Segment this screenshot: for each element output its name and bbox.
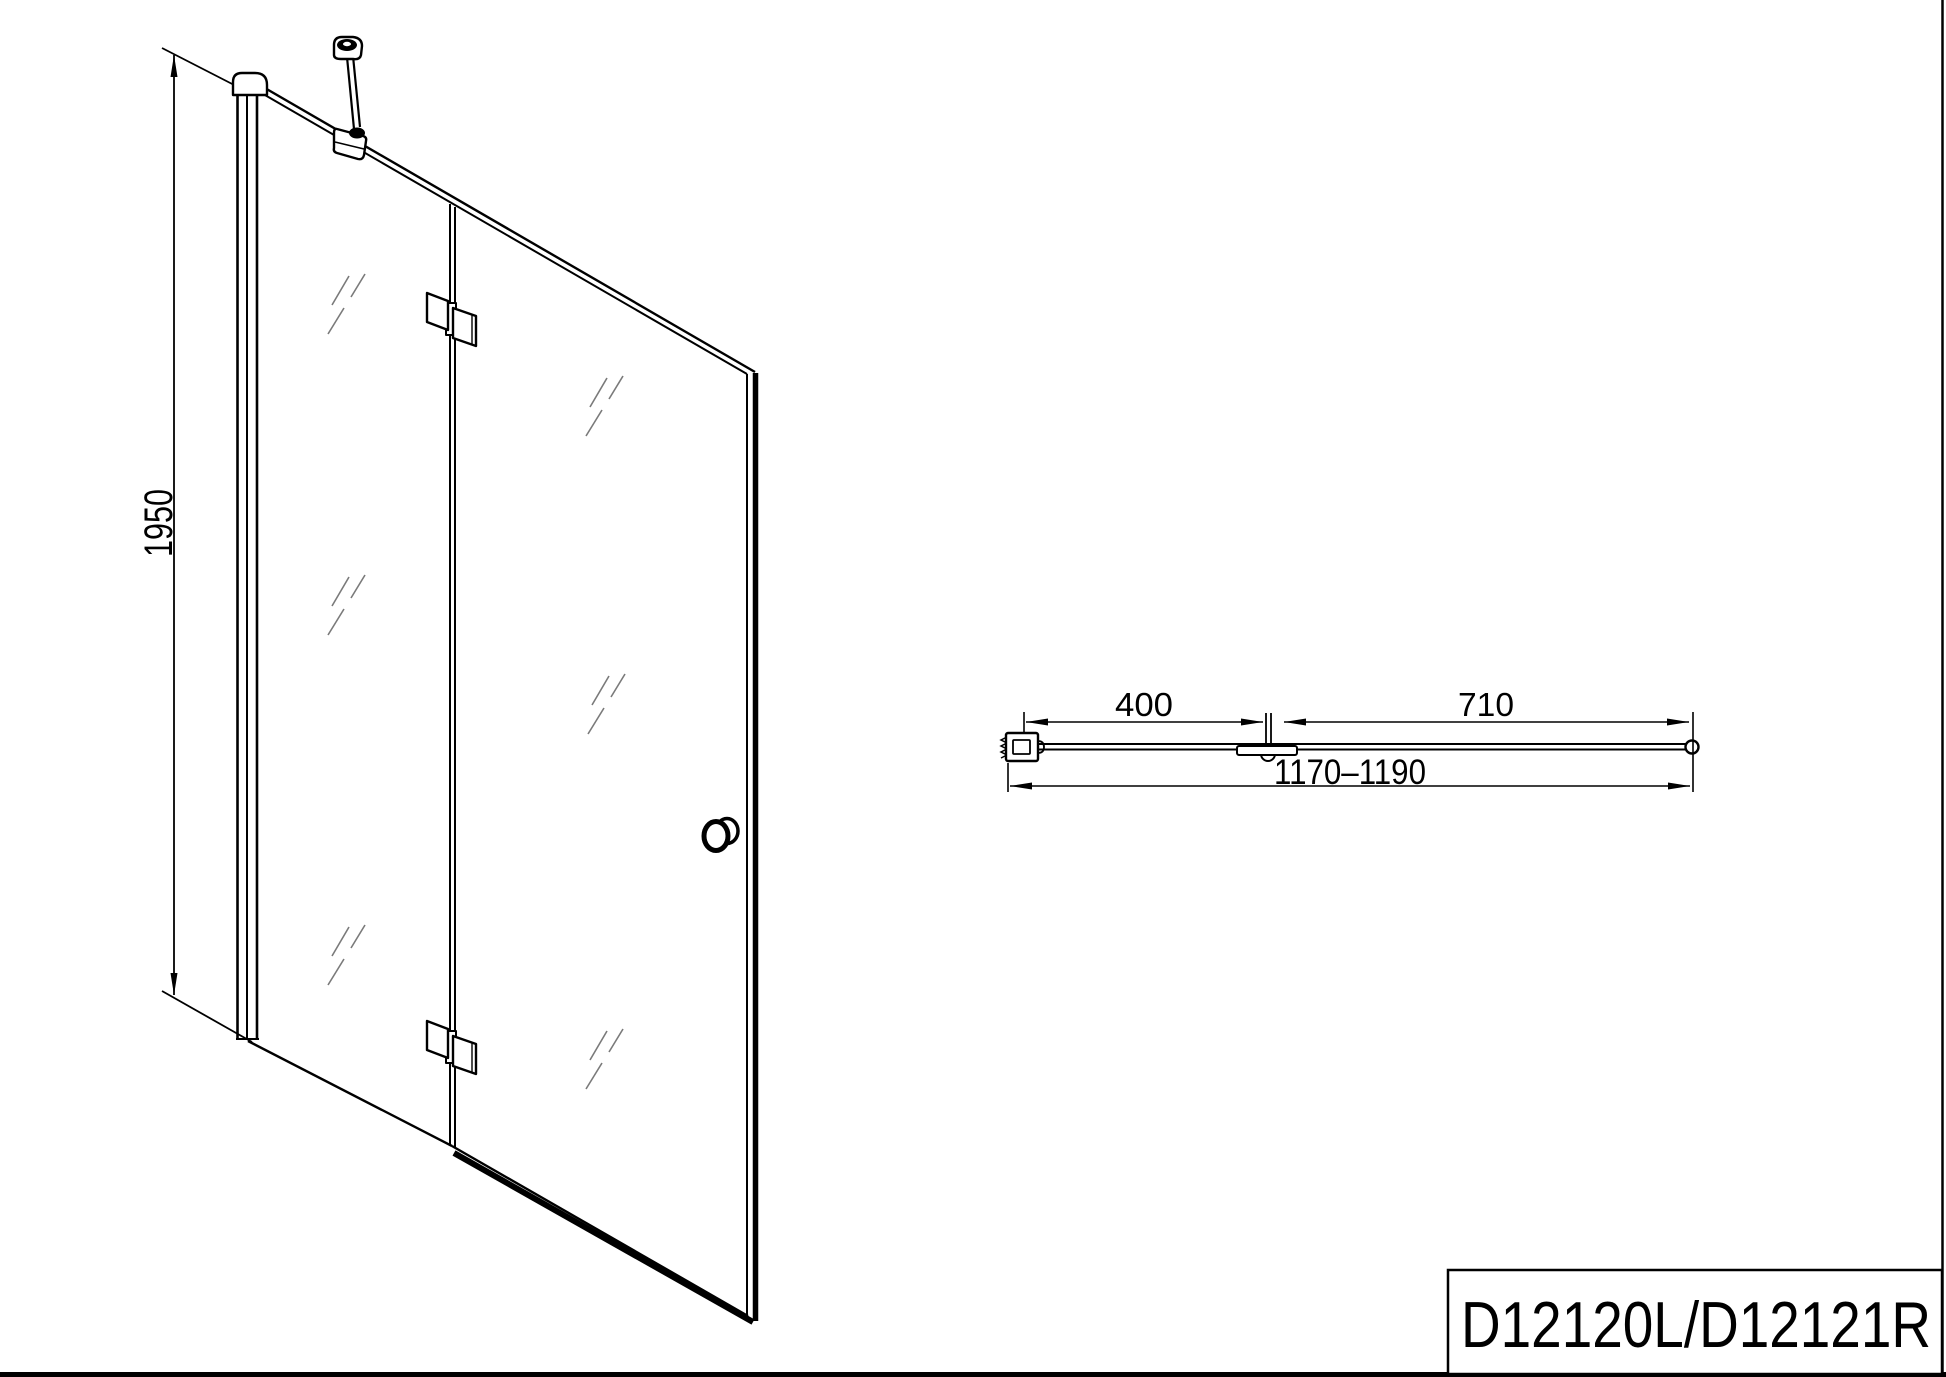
door-end-cap	[1686, 741, 1699, 754]
drawing-sheet: 1950 400 710 1170–1190 D12120L/D12121R	[0, 0, 1946, 1377]
hinge-plate-left	[427, 1021, 448, 1058]
panel-width-dimension-label: 400	[1115, 686, 1173, 723]
door-knob	[704, 819, 738, 851]
arrowhead-left	[1010, 783, 1032, 790]
support-bar-right-edge	[353, 56, 360, 127]
arrowhead-right	[1241, 719, 1263, 726]
support-bar-left-edge	[347, 57, 354, 129]
arrowhead-up	[171, 55, 178, 77]
glass-reflection-mark	[588, 674, 625, 734]
arrowhead-right	[1667, 719, 1689, 726]
sheet-frame	[0, 0, 1946, 1375]
door-bottom-seal	[454, 1153, 753, 1322]
total-width-dimension-label: 1170–1190	[1274, 753, 1426, 792]
glass-reflection-mark	[328, 274, 365, 334]
arrowhead-left	[1284, 719, 1306, 726]
model-code-label: D12120L/D12121R	[1461, 1288, 1931, 1361]
wall-profile	[233, 73, 267, 1039]
hinge-plate-left	[427, 293, 448, 330]
wall-bracket-plan	[1001, 733, 1044, 761]
shower-door-technical-drawing: 1950 400 710 1170–1190 D12120L/D12121R	[0, 0, 1946, 1377]
glass-reflection-mark	[328, 925, 365, 985]
bottom-hinge	[427, 1021, 476, 1074]
arrowhead-down	[171, 973, 178, 995]
glass-reflection-mark	[328, 575, 365, 635]
glass-reflection-marks	[328, 274, 625, 1089]
wall-bracket-inner	[1013, 740, 1030, 754]
front-view	[162, 37, 756, 1322]
glass-top-edge-outer	[258, 84, 755, 372]
support-bar-joint	[349, 128, 365, 139]
door-bottom-edge	[452, 1146, 748, 1316]
fixed-panel-bottom-edge	[248, 1041, 452, 1146]
glass-top-edge-inner	[258, 91, 747, 374]
door-width-dimension-label: 710	[1458, 686, 1514, 723]
wall-profile-top-cap	[233, 73, 267, 95]
arrowhead-left	[1026, 719, 1048, 726]
ceiling-support-bar	[334, 37, 366, 159]
glass-reflection-mark	[586, 376, 623, 436]
ceiling-mount-hole-highlight	[343, 42, 351, 46]
glass-clamp	[334, 128, 366, 160]
arrowhead-right	[1668, 783, 1690, 790]
glass-reflection-mark	[586, 1029, 623, 1089]
top-hinge	[427, 293, 476, 346]
height-dimension-label: 1950	[137, 489, 181, 557]
door-knob-face	[704, 822, 728, 851]
